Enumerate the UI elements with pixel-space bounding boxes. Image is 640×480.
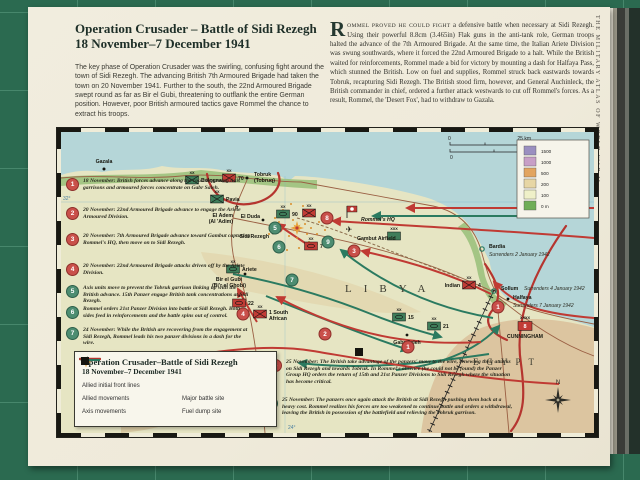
svg-text:XX: XX: [466, 276, 472, 280]
svg-text:XX: XX: [189, 171, 195, 175]
svg-text:XX: XX: [280, 205, 286, 209]
svg-text:8: 8: [523, 324, 526, 330]
drop-cap: R: [330, 21, 347, 38]
svg-text:Pavia: Pavia: [226, 197, 240, 203]
map-note-8: 8 25 November: The British take advantag…: [269, 359, 517, 385]
svg-text:2: 2: [323, 331, 327, 338]
map-note-2: 2 20 November: 22nd Armoured Brigade adv…: [66, 207, 252, 220]
book-page-edge: [608, 8, 640, 454]
svg-text:0: 0: [448, 136, 451, 142]
battle-map: 32° 24°: [57, 128, 598, 437]
svg-text:XXXX: XXXX: [520, 316, 531, 320]
fuel-dump-icon: [355, 348, 363, 356]
svg-text:4: 4: [478, 283, 481, 289]
svg-text:Sollum: Sollum: [501, 286, 519, 292]
svg-text:100: 100: [541, 193, 549, 198]
body-paragraph: ROMMEL PROVED HE COULD FIGHT a defensive…: [330, 21, 594, 106]
page-title-line1: Operation Crusader – Battle of Sidi Reze…: [75, 22, 345, 37]
elevation-legend: 1500 1000 500 200 100 0 m: [517, 140, 589, 218]
body-smallcaps: OMMEL PROVED HE COULD FIGHT: [347, 23, 450, 29]
map-note-3: 3 20 November: 7th Armoured Brigade adva…: [66, 233, 252, 246]
map-legend: Operation Crusader–Battle of Sidi Rezegh…: [74, 351, 277, 427]
legend-front-lines: Allied initial front lines: [82, 383, 182, 389]
map-note-6: 6 Rommel orders 21st Panzer Division int…: [66, 306, 252, 319]
svg-text:90: 90: [292, 212, 298, 218]
map-note-1: 1 18 November: British forces advance al…: [66, 178, 252, 191]
longitude-label: 24°: [288, 425, 296, 431]
legend-allied-movements: Allied movements: [82, 396, 182, 402]
rommels-hq-label: Rommel's HQ: [361, 217, 395, 223]
svg-text:XX: XX: [226, 169, 232, 173]
svg-text:CUNNINGHAM: CUNNINGHAM: [507, 334, 543, 340]
fuel-dump-legend-icon: [79, 356, 93, 366]
map-neatline-bottom: [57, 433, 598, 437]
svg-text:Surrenders 7 January 1942: Surrenders 7 January 1942: [513, 303, 574, 309]
svg-text:0 m: 0 m: [541, 204, 549, 209]
svg-text:3: 3: [352, 248, 356, 255]
legend-battle-site: Major battle site: [182, 396, 270, 402]
svg-text:15: 15: [408, 315, 414, 321]
atlas-page: Operation Crusader – Battle of Sidi Reze…: [28, 7, 610, 466]
svg-text:African: African: [269, 316, 287, 322]
gazala-label: Gazala: [96, 159, 113, 165]
gambut-airfield-label: Gambut Airfield: [357, 236, 396, 242]
svg-text:Halfaya: Halfaya: [513, 295, 532, 301]
page-title-line2: 18 November–7 December 1941: [75, 37, 345, 52]
note-1-badge: 1: [66, 178, 79, 191]
svg-text:Bardia: Bardia: [489, 244, 505, 250]
page-title: Operation Crusader – Battle of Sidi Reze…: [75, 22, 345, 52]
svg-text:XX: XX: [396, 308, 402, 312]
svg-text:XX: XX: [308, 237, 314, 241]
el-duda-dot: [262, 219, 265, 222]
svg-text:6: 6: [277, 244, 281, 251]
svg-text:21: 21: [443, 324, 449, 330]
svg-text:7: 7: [290, 277, 294, 284]
svg-text:Surrenders 2 January 1942: Surrenders 2 January 1942: [489, 252, 550, 258]
intro-paragraph: The key phase of Operation Crusader was …: [75, 63, 325, 119]
map-note-9: 9 25 November: The panzers once again at…: [265, 397, 515, 417]
svg-text:1: 1: [406, 344, 410, 351]
svg-text:Indian: Indian: [445, 283, 460, 289]
body-text: a defensive battle when necessary at Sid…: [330, 22, 594, 104]
gazala-dot: [103, 168, 106, 171]
legend-subtitle: 18 November–7 December 1941: [82, 367, 269, 376]
gambut-airfield-icon: ✈: [346, 225, 353, 234]
map-neatline-right: [594, 128, 598, 437]
svg-text:1500: 1500: [541, 149, 552, 154]
svg-text:XX: XX: [257, 305, 263, 309]
legend-axis-movements: Axis movements: [82, 409, 182, 415]
halfaya-dot: [507, 298, 510, 301]
latitude-label: 32°: [63, 196, 71, 202]
svg-text:XX: XX: [431, 317, 437, 321]
svg-text:500: 500: [541, 171, 549, 176]
svg-text:0: 0: [450, 155, 453, 161]
svg-text:1: 1: [496, 304, 500, 311]
map-note-5: 5 Axis units move to prevent the Tobruk …: [66, 285, 252, 305]
legend-fuel-dump: Fuel dump site: [182, 409, 270, 415]
svg-text:200: 200: [541, 182, 549, 187]
svg-text:5: 5: [273, 225, 277, 232]
map-note-7: 7 24 November: While the British are rec…: [66, 327, 252, 347]
svg-text:1000: 1000: [541, 160, 552, 165]
legend-title: Operation Crusader–Battle of Sidi Rezegh: [82, 357, 269, 367]
svg-text:Surrenders 4 January 1942: Surrenders 4 January 1942: [524, 286, 585, 292]
gabr-saleh-dot: [406, 334, 409, 337]
svg-text:XX: XX: [306, 204, 312, 208]
svg-text:9: 9: [326, 239, 330, 246]
svg-text:(Tobruq): (Tobruq): [254, 178, 275, 184]
svg-text:8: 8: [325, 215, 329, 222]
compass-north-label: N: [556, 380, 560, 386]
map-note-4: 4 20 November: 22nd Armoured Brigade att…: [66, 263, 252, 276]
svg-text:XXX: XXX: [390, 227, 398, 231]
region-label-libya: LIBYA: [345, 283, 437, 295]
